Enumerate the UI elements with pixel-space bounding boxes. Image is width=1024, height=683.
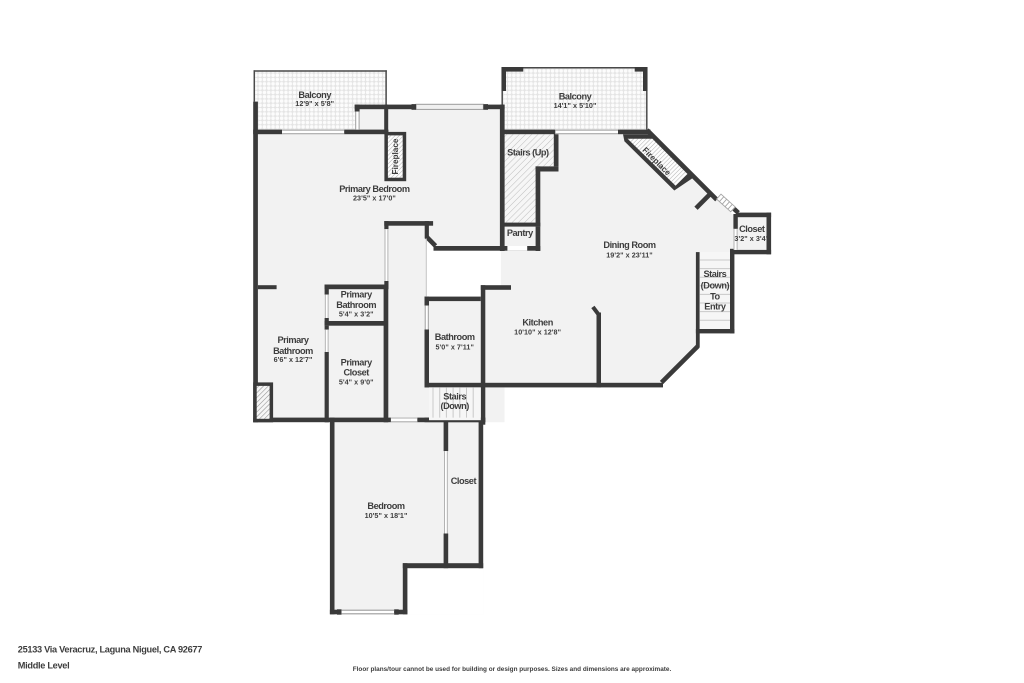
svg-text:5'4" x 3'2": 5'4" x 3'2" bbox=[339, 309, 374, 318]
svg-text:Primary Bedroom: Primary Bedroom bbox=[339, 184, 410, 194]
svg-text:10'10" x 12'8": 10'10" x 12'8" bbox=[514, 327, 561, 336]
svg-text:(Down): (Down) bbox=[440, 401, 469, 411]
svg-text:Closet: Closet bbox=[451, 476, 477, 486]
svg-text:Primary: Primary bbox=[341, 290, 373, 300]
svg-text:5'0" x 7'11": 5'0" x 7'11" bbox=[435, 343, 473, 352]
svg-text:Floor plans/tour cannot be use: Floor plans/tour cannot be used for buil… bbox=[353, 666, 672, 673]
svg-text:3'2" x 3'4": 3'2" x 3'4" bbox=[734, 234, 769, 243]
svg-text:Primary: Primary bbox=[341, 358, 373, 368]
svg-text:12'9" x 5'8": 12'9" x 5'8" bbox=[295, 99, 334, 108]
svg-text:Stairs: Stairs bbox=[443, 391, 466, 401]
svg-text:Closet: Closet bbox=[739, 224, 765, 234]
svg-text:Bathroom: Bathroom bbox=[435, 332, 475, 342]
svg-text:(Down): (Down) bbox=[701, 280, 730, 290]
svg-text:Kitchen: Kitchen bbox=[522, 318, 553, 328]
svg-text:14'1" x 5'10": 14'1" x 5'10" bbox=[554, 101, 597, 110]
svg-text:To: To bbox=[710, 292, 720, 302]
svg-text:Pantry: Pantry bbox=[507, 228, 534, 238]
svg-text:19'2" x 23'11": 19'2" x 23'11" bbox=[606, 251, 653, 260]
svg-text:Stairs: Stairs bbox=[703, 269, 726, 279]
svg-text:Primary: Primary bbox=[277, 335, 309, 345]
svg-text:10'5" x 18'1": 10'5" x 18'1" bbox=[365, 511, 408, 520]
svg-text:Fireplace: Fireplace bbox=[391, 138, 400, 174]
svg-text:Entry: Entry bbox=[704, 302, 727, 312]
svg-text:Dining Room: Dining Room bbox=[603, 240, 655, 250]
svg-text:Bedroom: Bedroom bbox=[367, 501, 404, 511]
svg-text:Stairs (Up): Stairs (Up) bbox=[507, 147, 549, 157]
svg-text:25133 Via Veracruz, Laguna Nig: 25133 Via Veracruz, Laguna Niguel, CA 92… bbox=[18, 645, 202, 655]
svg-text:Middle Level: Middle Level bbox=[18, 661, 70, 671]
svg-text:23'5" x 17'0": 23'5" x 17'0" bbox=[353, 194, 396, 203]
svg-text:Closet: Closet bbox=[344, 367, 370, 377]
svg-text:5'4" x 9'0": 5'4" x 9'0" bbox=[339, 377, 374, 386]
svg-text:6'6" x 12'7": 6'6" x 12'7" bbox=[274, 355, 313, 364]
